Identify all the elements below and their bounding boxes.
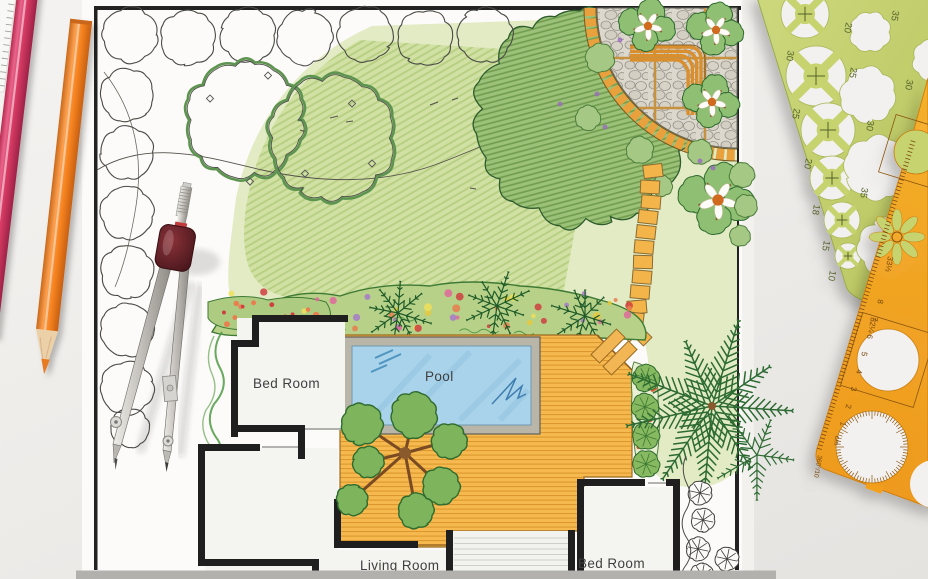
wall — [198, 559, 317, 566]
wall — [673, 479, 680, 579]
green-template-size-label: 18 — [809, 203, 822, 215]
wall — [298, 425, 305, 459]
wall — [198, 444, 205, 566]
wall — [252, 315, 348, 322]
green-template-size-label: 20 — [841, 21, 854, 33]
green-template-size-label: 10 — [825, 269, 838, 281]
green-template-size-label: 30 — [902, 78, 915, 90]
green-template-size-label: 20 — [801, 157, 814, 169]
wall — [231, 340, 238, 437]
green-template-size-label: 30 — [863, 119, 876, 131]
pool-label: Pool — [425, 369, 454, 384]
wall — [577, 479, 645, 486]
green-template-size-label: 25 — [789, 107, 802, 119]
green-template-size-label: 30 — [783, 49, 796, 61]
wall — [334, 541, 418, 548]
wall — [198, 444, 260, 451]
wall — [231, 425, 305, 432]
green-template-size-label: 35 — [857, 186, 870, 198]
bedroom-bottom-label: Bed Room — [578, 556, 645, 571]
bedroom-top-label: Bed Room — [253, 376, 320, 391]
photo-scene: Bed Room Pool Living Room Bed Room 30252… — [0, 0, 928, 579]
green-template-size-label: 25 — [846, 66, 859, 78]
green-template-size-label: 35 — [888, 9, 901, 21]
green-template-size-label: 15 — [819, 239, 832, 251]
plan-drawing: Bed Room Pool Living Room Bed Room 30252… — [0, 0, 928, 579]
paper-edge-shadow — [76, 571, 776, 579]
